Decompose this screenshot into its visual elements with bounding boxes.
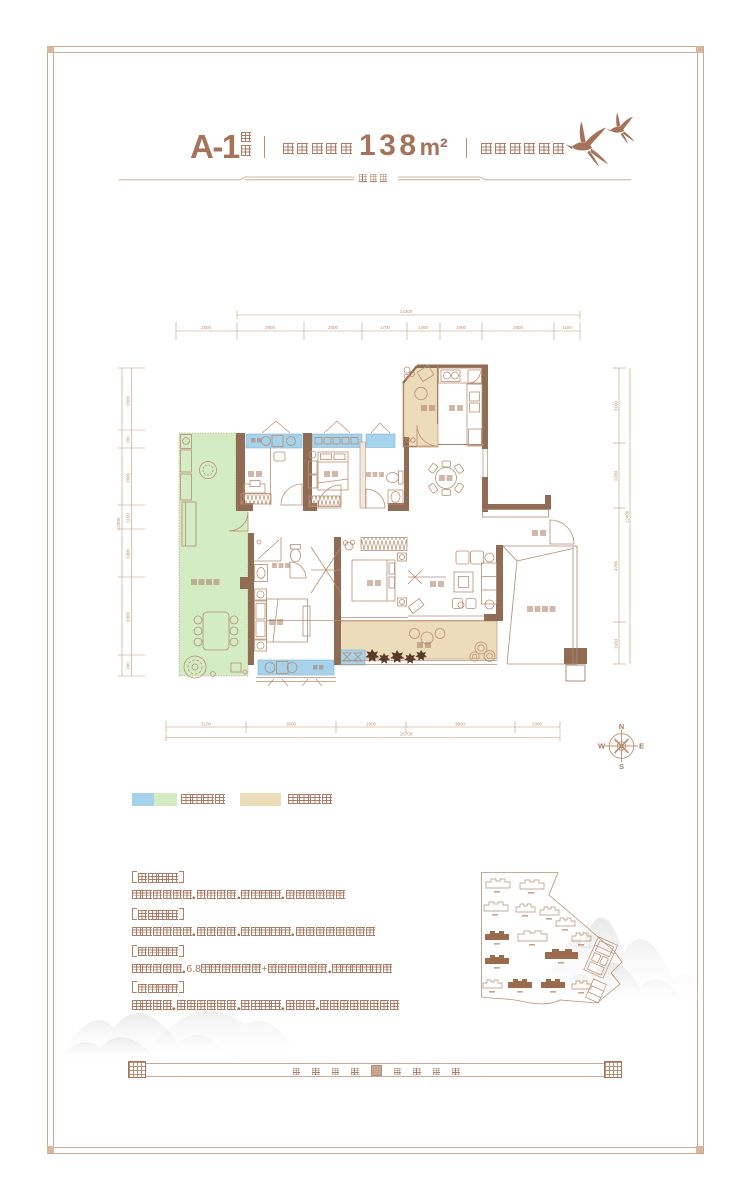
svg-text:2800: 2800	[513, 325, 524, 330]
svg-text:1900: 1900	[456, 325, 467, 330]
svg-text:2500: 2500	[328, 325, 339, 330]
svg-text:3600: 3600	[286, 722, 297, 727]
svg-text:700: 700	[126, 436, 131, 444]
svg-text:2700: 2700	[614, 470, 619, 481]
svg-text:E: E	[639, 742, 644, 751]
svg-text:4700: 4700	[614, 560, 619, 571]
svg-text:W: W	[598, 742, 606, 751]
svg-text:2900: 2900	[366, 722, 377, 727]
svg-text:3300: 3300	[126, 611, 131, 622]
svg-text:2600: 2600	[126, 472, 131, 483]
svg-text:1700: 1700	[380, 325, 391, 330]
svg-text:3900: 3900	[455, 722, 466, 727]
svg-text:2900: 2900	[265, 325, 276, 330]
svg-text:N: N	[619, 722, 624, 731]
svg-text:12900: 12900	[116, 517, 121, 530]
svg-text:15700: 15700	[400, 732, 413, 737]
svg-text:S: S	[619, 762, 624, 771]
svg-text:1900: 1900	[126, 548, 131, 559]
svg-text:12400: 12400	[625, 510, 630, 523]
svg-text:700: 700	[126, 662, 131, 670]
svg-text:2600: 2600	[126, 395, 131, 406]
svg-text:1400: 1400	[418, 325, 429, 330]
svg-text:1900: 1900	[614, 638, 619, 649]
svg-text:2500: 2500	[201, 325, 212, 330]
svg-text:3300: 3300	[532, 722, 543, 727]
svg-text:14300: 14300	[400, 309, 413, 314]
svg-text:1100: 1100	[126, 513, 131, 523]
svg-text:3100: 3100	[614, 400, 619, 411]
svg-text:3100: 3100	[201, 722, 212, 727]
svg-text:1100: 1100	[562, 325, 572, 330]
